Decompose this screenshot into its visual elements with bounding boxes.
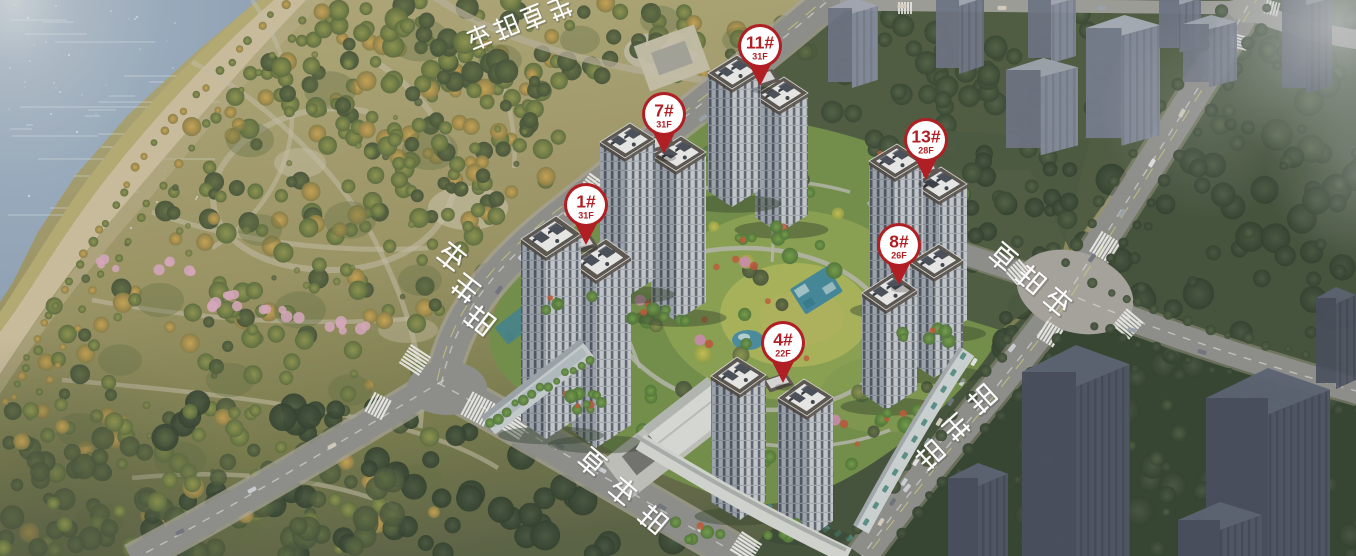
svg-text:11#: 11# bbox=[746, 33, 774, 53]
svg-text:28F: 28F bbox=[918, 146, 934, 156]
svg-text:4#: 4# bbox=[773, 330, 793, 350]
svg-text:26F: 26F bbox=[891, 251, 907, 261]
svg-text:31F: 31F bbox=[578, 211, 594, 221]
svg-text:1#: 1# bbox=[576, 192, 596, 212]
svg-text:31F: 31F bbox=[656, 120, 672, 130]
svg-text:8#: 8# bbox=[889, 232, 909, 252]
svg-text:13#: 13# bbox=[911, 127, 940, 147]
svg-text:31F: 31F bbox=[752, 52, 768, 62]
svg-text:7#: 7# bbox=[654, 101, 674, 121]
svg-text:22F: 22F bbox=[775, 349, 791, 359]
